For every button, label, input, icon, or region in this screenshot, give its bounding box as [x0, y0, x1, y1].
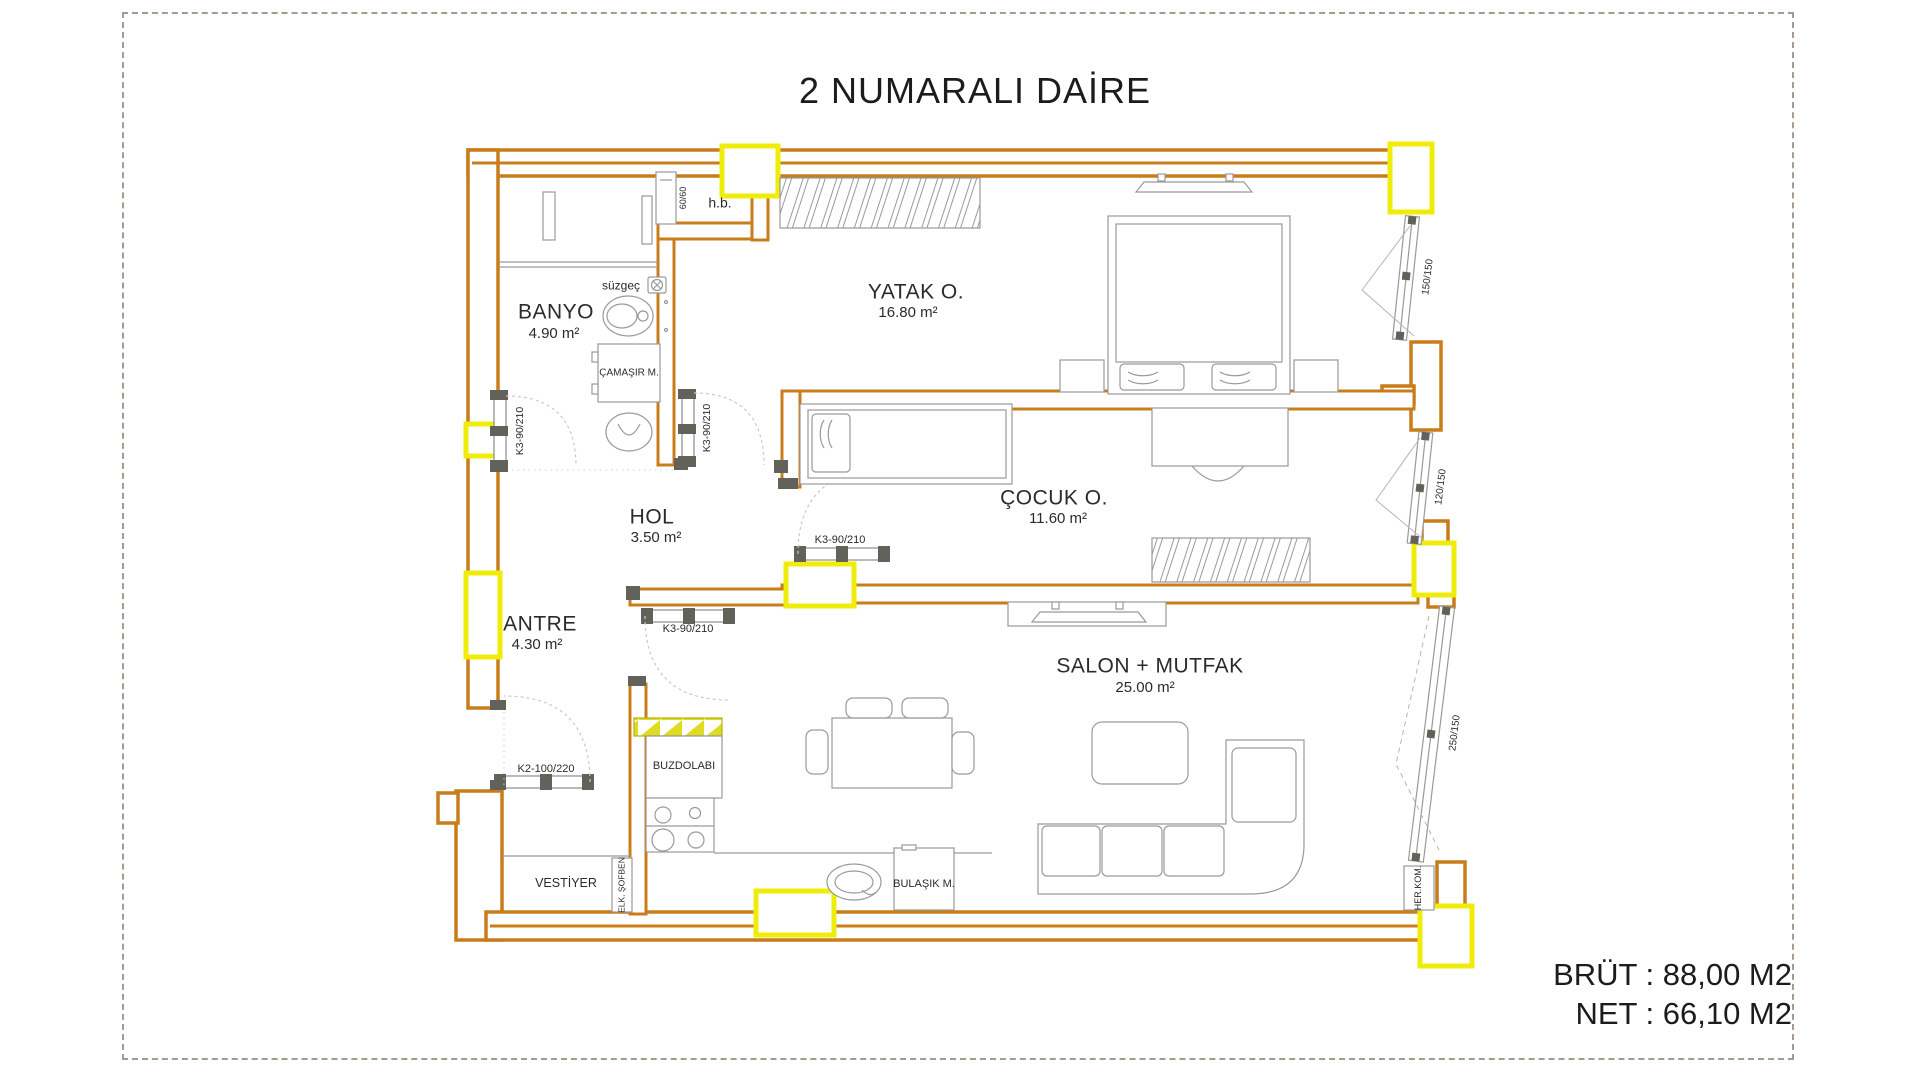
- label-elk-sofben: ELK. ŞOFBEN: [617, 857, 626, 913]
- nightstand-right: [1294, 360, 1338, 392]
- label-vestiyer: VESTİYER: [535, 877, 597, 891]
- chair: [952, 732, 974, 774]
- chair: [902, 698, 948, 718]
- room-label-cocuk: ÇOCUK O.: [1000, 486, 1108, 509]
- door-label-cocuk: K3-90/210: [815, 534, 866, 546]
- bedroom-furniture: [780, 174, 1338, 394]
- room-label-salon: SALON + MUTFAK: [1056, 654, 1243, 677]
- wardrobe-yatak: [780, 178, 980, 228]
- radiator-salon: [1032, 612, 1146, 622]
- room-area-yatak: 16.80 m²: [878, 305, 937, 322]
- nightstand-left: [1060, 360, 1104, 392]
- shower-glass-panel: [642, 196, 652, 244]
- towel-radiator: [543, 192, 555, 240]
- area-summary: BRÜT : 88,00 M2 NET : 66,10 M2: [1553, 956, 1792, 1034]
- door-label-banyo: K3-90/210: [515, 407, 527, 455]
- coffee-table: [1092, 722, 1188, 784]
- door-label-yatak: K3-90/210: [702, 404, 714, 452]
- desk-chair: [1192, 466, 1244, 481]
- wardrobe-cocuk: [1152, 538, 1310, 582]
- floor-plan-drawing: [0, 0, 1920, 1080]
- label-shower-size: 60/60: [679, 187, 689, 210]
- room-area-salon: 25.00 m²: [1115, 680, 1174, 697]
- bathroom-sink: [606, 413, 652, 451]
- outer-walls: [438, 150, 1465, 940]
- room-label-banyo: BANYO: [518, 300, 594, 323]
- room-label-hol: HOL: [630, 505, 675, 528]
- chair: [846, 698, 892, 718]
- label-bulasik: BULAŞIK M.: [893, 878, 955, 890]
- kitchen-counter-hatch: [634, 718, 722, 736]
- dining-table: [832, 718, 952, 788]
- room-area-antre: 4.30 m²: [512, 637, 563, 654]
- label-her-kom: HER.KOM.: [1414, 866, 1424, 911]
- label-buzdolabi: BUZDOLABI: [653, 760, 715, 772]
- label-hb: h.b.: [708, 195, 731, 210]
- brut-value: BRÜT : 88,00 M2: [1553, 956, 1792, 995]
- room-label-yatak: YATAK O.: [868, 280, 964, 303]
- door-label-entry: K2-100/220: [518, 763, 575, 775]
- window-150x150: [1362, 216, 1419, 341]
- desk: [1152, 408, 1288, 466]
- door-label-salon: K3-90/210: [663, 623, 714, 635]
- room-area-hol: 3.50 m²: [631, 530, 682, 547]
- room-label-antre: ANTRE: [503, 612, 577, 635]
- chair: [806, 730, 828, 774]
- radiator-yatak: [1136, 182, 1252, 192]
- window-250x150: [1396, 606, 1455, 862]
- room-area-banyo: 4.90 m²: [529, 326, 580, 343]
- label-suzgec: süzgeç: [602, 279, 640, 292]
- label-camasir: ÇAMAŞIR M.: [599, 368, 658, 379]
- floor-plan-page: 2 NUMARALI DAİRE: [0, 0, 1920, 1080]
- room-area-cocuk: 11.60 m²: [1029, 511, 1087, 528]
- net-value: NET : 66,10 M2: [1553, 995, 1792, 1034]
